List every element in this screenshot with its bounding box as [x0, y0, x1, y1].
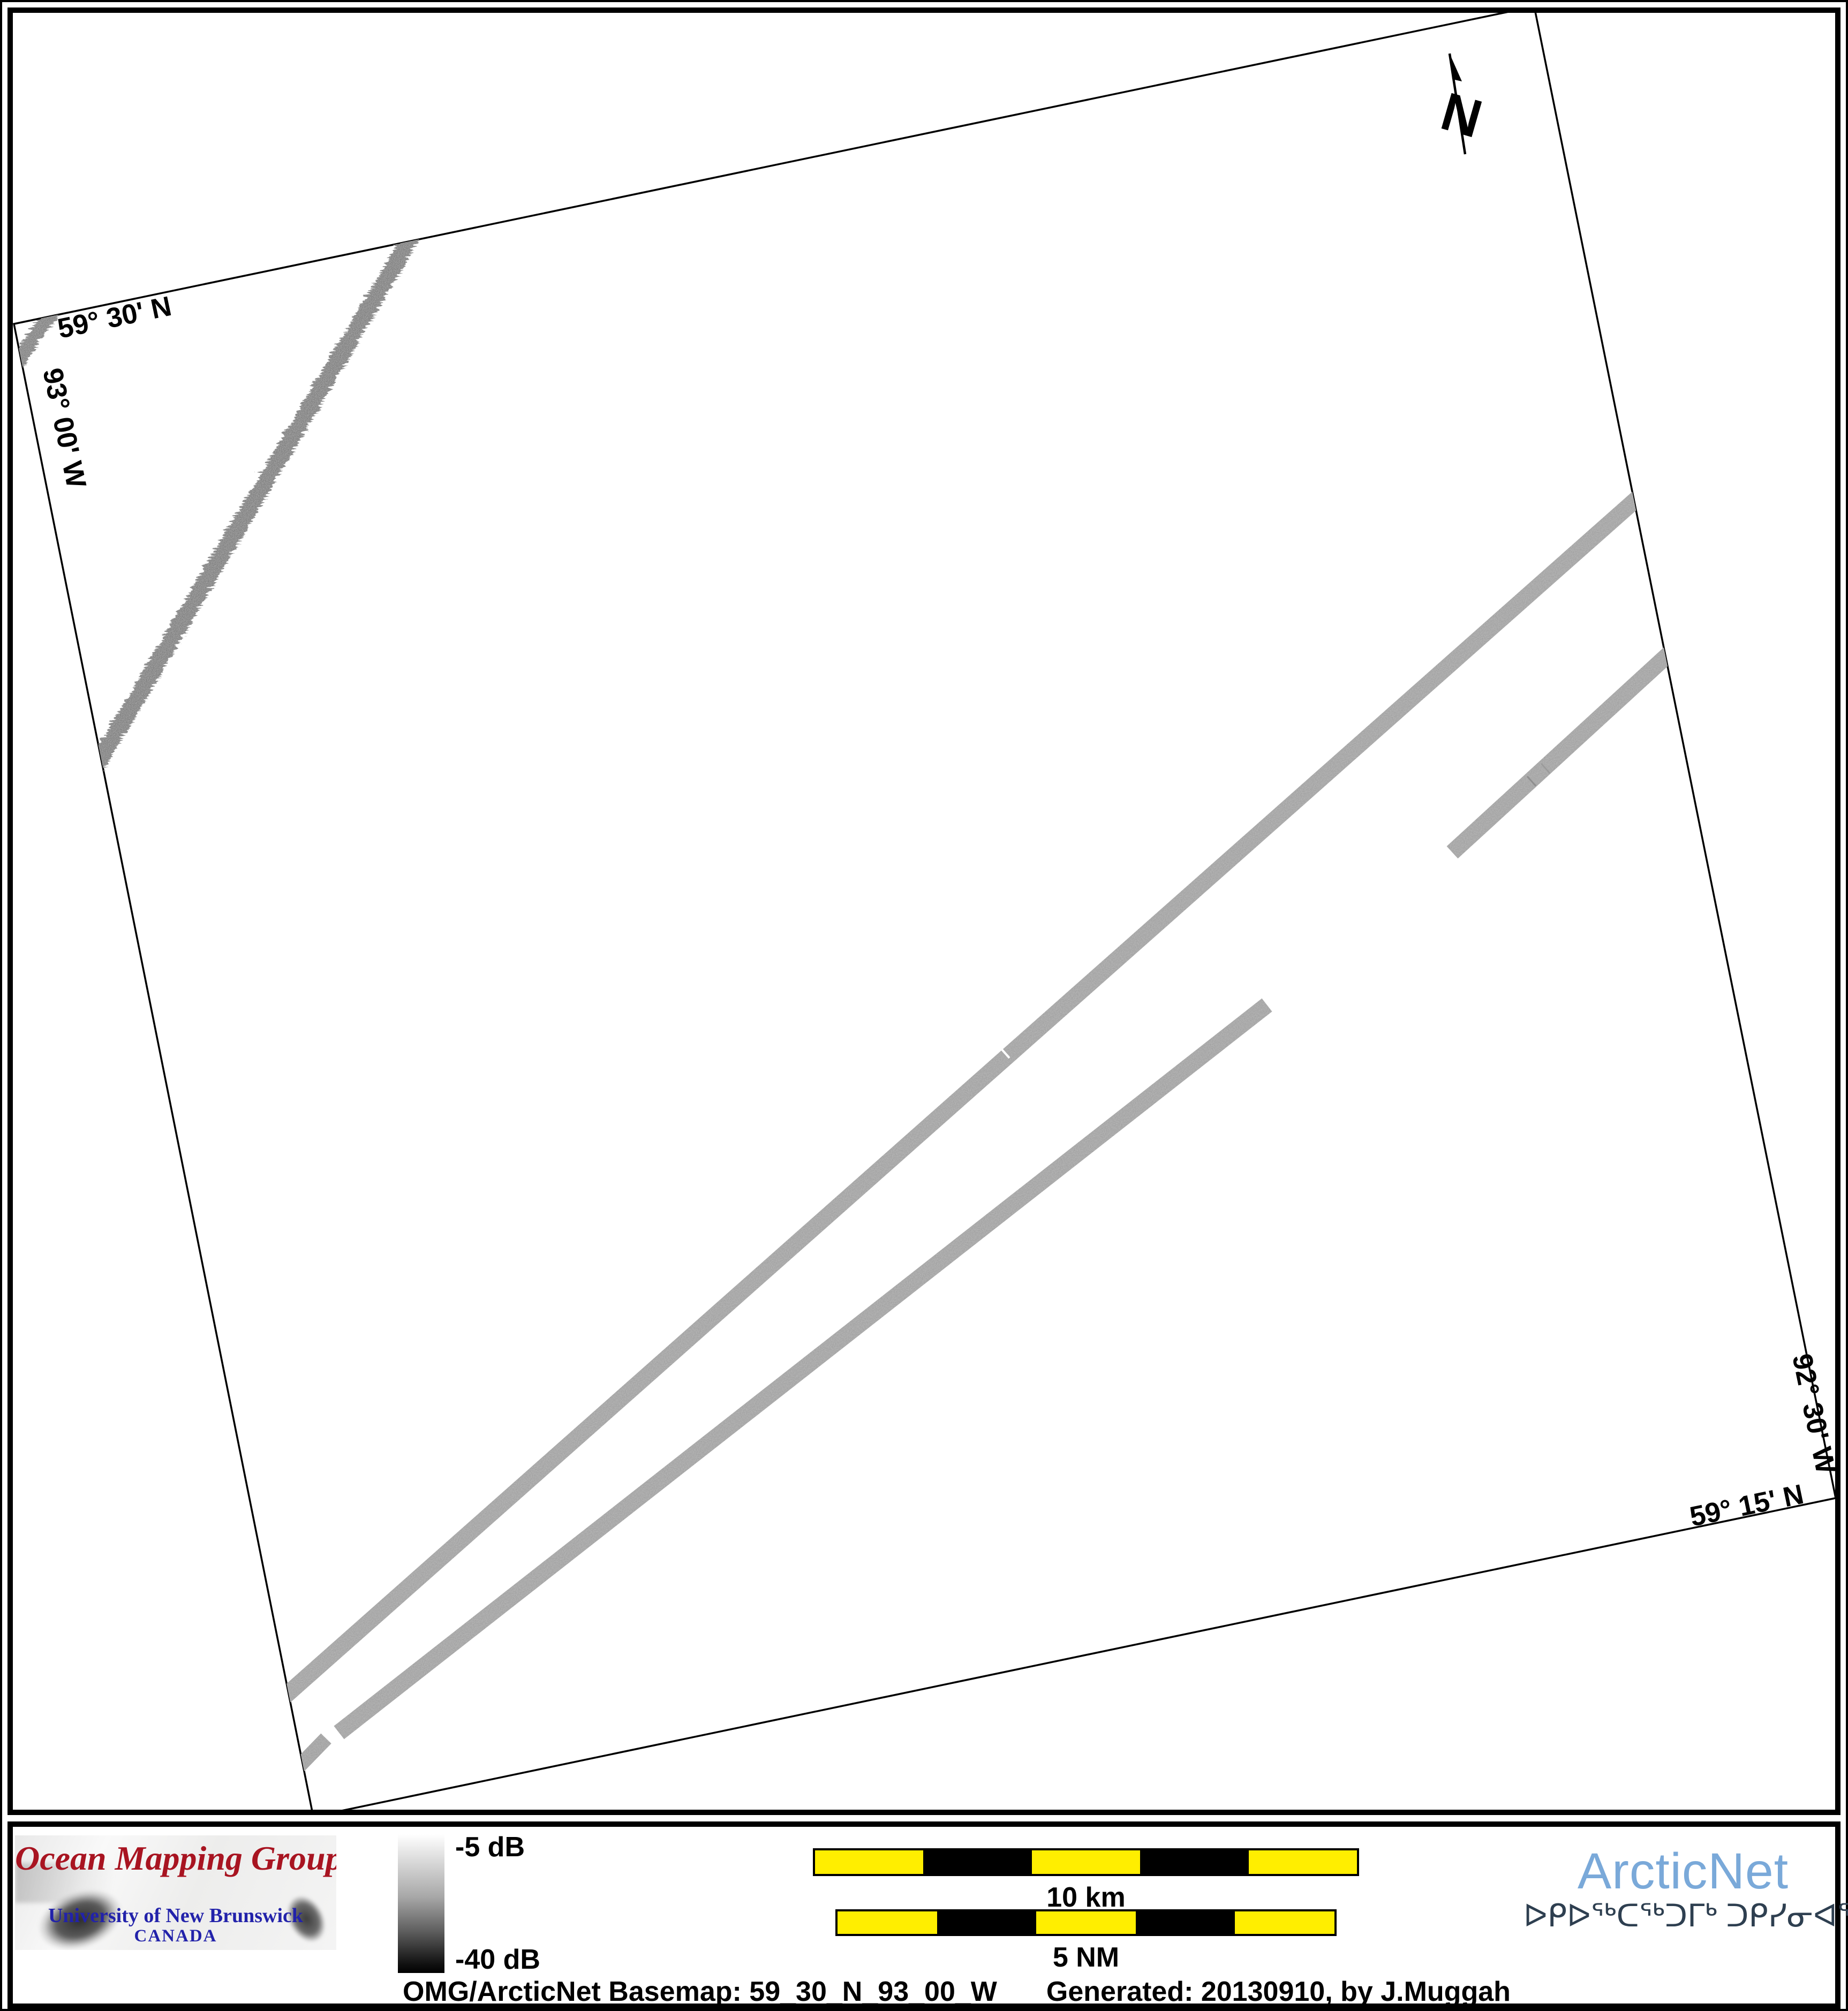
- caption-generated-info: Generated: 20130910, by J.Muggah: [1046, 1976, 1511, 2007]
- map-canvas: 59° 30' N 93° 00' W 92° 30' W 59° 15' N …: [13, 13, 1841, 1810]
- scalebar-kilometers: [813, 1848, 1359, 1876]
- scalebar-nautical-miles-label: 5 NM: [835, 1941, 1337, 1974]
- arcticnet-logo-inuktitut-text: ᐅᑭᐅᖅᑕᖅᑐᒥᒃ ᑐᑭᓯᓂᐊᖅᑎᒌᑦ: [1523, 1901, 1843, 1932]
- scalebar-segment: [1036, 1911, 1136, 1934]
- scalebar-kilometers-label: 10 km: [813, 1881, 1359, 1914]
- arcticnet-logo-name: ArcticNet: [1523, 1845, 1843, 1899]
- scalebar-segment: [1249, 1850, 1357, 1874]
- scalebar-segment: [838, 1911, 937, 1934]
- map-caption: OMG/ArcticNet Basemap: 59_30_N_93_00_WGe…: [403, 1976, 1511, 2008]
- scalebar-nautical-miles: [835, 1909, 1337, 1936]
- map-neatline: [14, 13, 1836, 1810]
- scalebar-segment: [923, 1850, 1031, 1874]
- omg-logo-country: CANADA: [15, 1926, 336, 1946]
- backscatter-colorbar: [398, 1834, 444, 1973]
- scalebar-segment: [937, 1911, 1037, 1934]
- arcticnet-logo: ArcticNet ᐅᑭᐅᖅᑕᖅᑐᒥᒃ ᑐᑭᓯᓂᐊᖅᑎᒌᑦ: [1523, 1845, 1843, 1932]
- omg-logo-institution: University of New Brunswick: [15, 1904, 336, 1927]
- colorbar-min-label: -40 dB: [455, 1944, 540, 1976]
- scalebar-segment: [815, 1850, 923, 1874]
- colorbar-max-label: -5 dB: [455, 1831, 525, 1863]
- omg-logo-title: Ocean Mapping Group: [15, 1839, 336, 1878]
- omg-logo: Ocean Mapping Group University of New Br…: [15, 1835, 336, 1950]
- omg-arcticnet-basemap-page: { "map": { "north_label": "N", "graticul…: [0, 0, 1848, 2011]
- scalebar-segment: [1136, 1911, 1235, 1934]
- scalebar-segment: [1032, 1850, 1140, 1874]
- caption-basemap-id: OMG/ArcticNet Basemap: 59_30_N_93_00_W: [403, 1976, 997, 2007]
- scalebar-segment: [1140, 1850, 1248, 1874]
- legend-bar: Ocean Mapping Group University of New Br…: [7, 1821, 1841, 2009]
- scalebar-segment: [1235, 1911, 1334, 1934]
